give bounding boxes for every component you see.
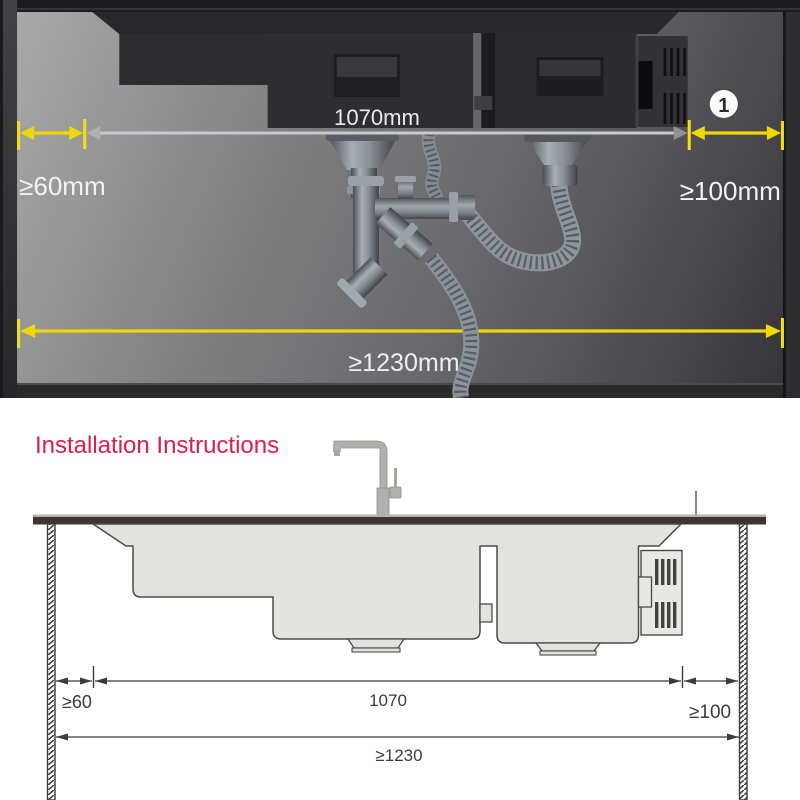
svg-text:≥1230: ≥1230	[375, 746, 422, 765]
svg-text:≥100: ≥100	[689, 702, 731, 723]
svg-text:1: 1	[718, 95, 729, 117]
svg-text:≥1230mm: ≥1230mm	[348, 349, 459, 377]
svg-text:1070mm: 1070mm	[334, 105, 420, 130]
svg-text:≥100mm: ≥100mm	[680, 176, 781, 206]
svg-text:Installation Instructions: Installation Instructions	[35, 432, 279, 459]
svg-text:≥60mm: ≥60mm	[19, 171, 106, 201]
svg-text:≥60: ≥60	[62, 692, 92, 712]
svg-text:1070: 1070	[369, 691, 407, 710]
